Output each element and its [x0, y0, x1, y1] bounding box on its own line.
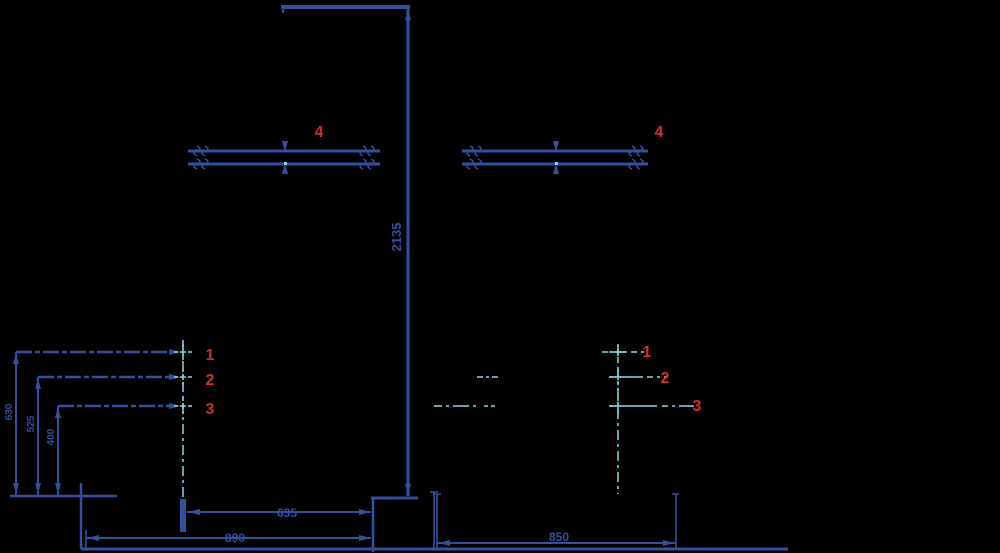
arrow-down-icon — [55, 483, 61, 494]
part-label-2-right: 2 — [661, 370, 670, 387]
dim-hole2-height: 525 — [26, 415, 37, 432]
technical-drawing-canvas: 2135 4 4 — [0, 0, 1000, 553]
centerline-right — [434, 344, 694, 494]
arrow-up-icon — [405, 9, 411, 20]
part-label-4-left: 4 — [315, 124, 324, 141]
base-profile — [371, 492, 438, 552]
technical-drawing: 2135 4 4 — [0, 0, 1000, 553]
arrow-left-icon — [188, 509, 200, 515]
height-dimension: 2135 — [281, 5, 411, 496]
hole1-cross-icon — [609, 344, 627, 360]
arrow-down-icon — [13, 483, 19, 494]
arrow-left-icon — [438, 540, 450, 546]
wall-profile-section — [180, 499, 186, 532]
arrow-up-icon — [35, 378, 41, 389]
hole1-cross-icon — [174, 344, 192, 360]
width-dimension-outer: 890 — [86, 530, 371, 549]
dim-hole1-height: 630 — [4, 403, 15, 420]
dim-inner-width: 635 — [277, 506, 297, 520]
dim-right-width: 850 — [549, 530, 569, 544]
arrow-right-icon — [663, 540, 675, 546]
hole2-cross-icon — [174, 369, 192, 385]
dim-outer-width: 890 — [225, 531, 245, 545]
arrow-right-icon — [359, 535, 371, 541]
support-bar-right: 4 — [462, 124, 664, 174]
width-dimension-right: 850 — [434, 494, 679, 549]
part-label-4-right: 4 — [655, 124, 664, 141]
arrow-left-icon — [87, 535, 99, 541]
arrow-right-icon — [359, 509, 371, 515]
hole3-cross-icon — [174, 398, 192, 414]
part-label-1-right: 1 — [643, 344, 652, 361]
hole-height-dimensions: 630 525 400 — [4, 349, 181, 496]
width-dimension-inner: 635 — [187, 506, 371, 520]
part-label-2-left: 2 — [206, 372, 215, 389]
arrow-up-icon — [55, 407, 61, 418]
part-label-1-left: 1 — [206, 347, 215, 364]
centerline-dot — [555, 162, 558, 165]
arrow-down-icon — [405, 484, 411, 495]
dim-total-height: 2135 — [389, 223, 404, 252]
arrow-down-icon — [35, 483, 41, 494]
arrow-up-icon — [13, 353, 19, 364]
centerline-left — [174, 340, 192, 532]
dim-hole3-height: 400 — [46, 428, 57, 445]
centerline-dot — [284, 162, 287, 165]
hole2-cross-icon — [609, 369, 627, 385]
support-bar-left: 4 — [188, 124, 380, 174]
part-label-3-left: 3 — [206, 401, 215, 418]
part-label-3-right: 3 — [693, 398, 702, 415]
hole3-cross-icon — [609, 398, 627, 414]
